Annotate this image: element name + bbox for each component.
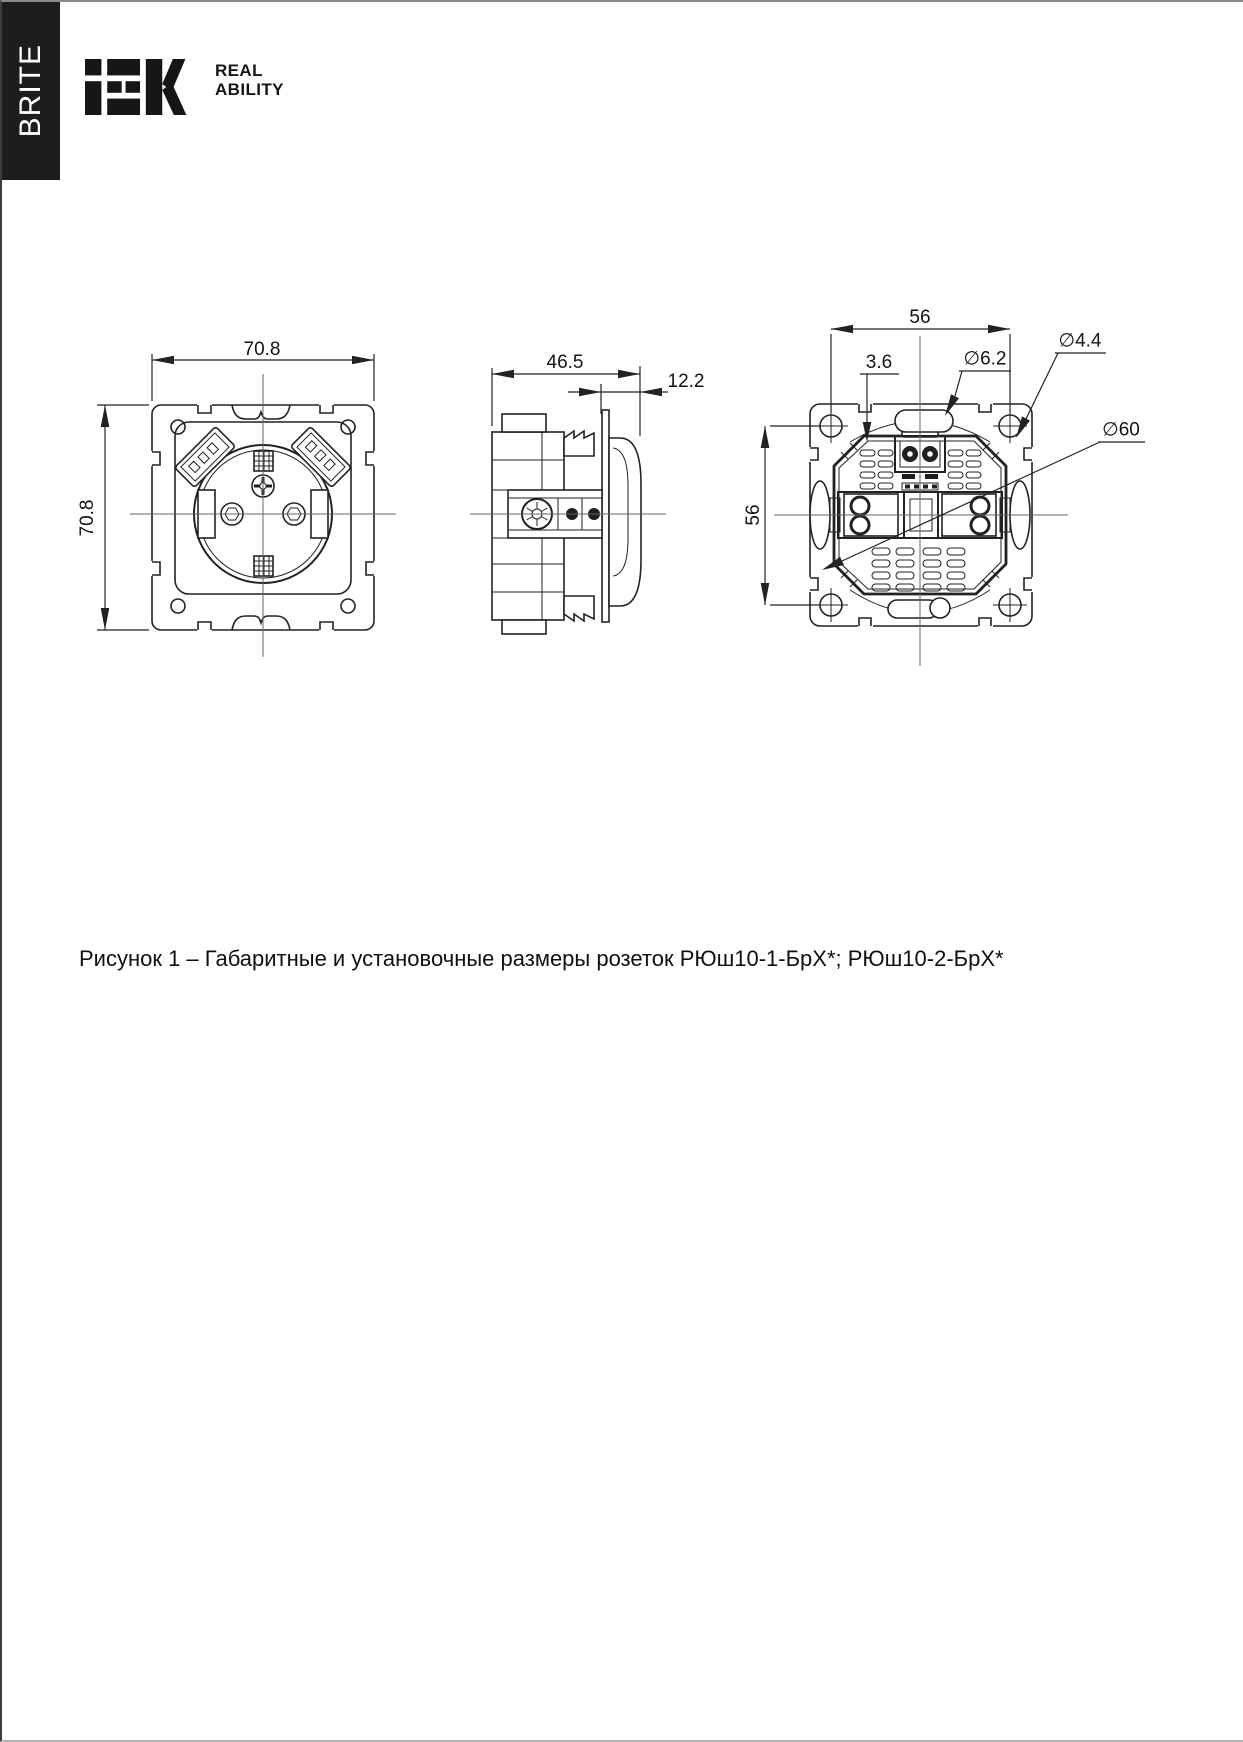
figure-caption: Рисунок 1 – Габаритные и установочные ра… (79, 946, 1004, 972)
dim-rear-slot-diameter: ∅6.2 (964, 348, 1007, 371)
rear-view-drawing (761, 325, 1145, 666)
dimension-drawing (2, 2, 1243, 1742)
front-view-drawing (97, 354, 396, 657)
dim-rear-hole-diameter: ∅4.4 (1059, 330, 1102, 353)
dim-front-width: 70.8 (244, 339, 281, 361)
dim-front-height: 70.8 (77, 500, 99, 537)
side-view-drawing (470, 366, 668, 634)
dim-rear-span-vertical: 56 (743, 504, 765, 525)
dim-side-depth: 46.5 (547, 352, 584, 374)
dim-rear-span-horizontal: 56 (909, 307, 930, 329)
document-page: BRITE REAL ABILITY (0, 0, 1243, 1742)
dim-side-cover-depth: 12.2 (668, 371, 705, 393)
dim-rear-body-diameter: ∅60 (1102, 419, 1140, 442)
dim-rear-claw-gap: 3.6 (866, 352, 892, 374)
